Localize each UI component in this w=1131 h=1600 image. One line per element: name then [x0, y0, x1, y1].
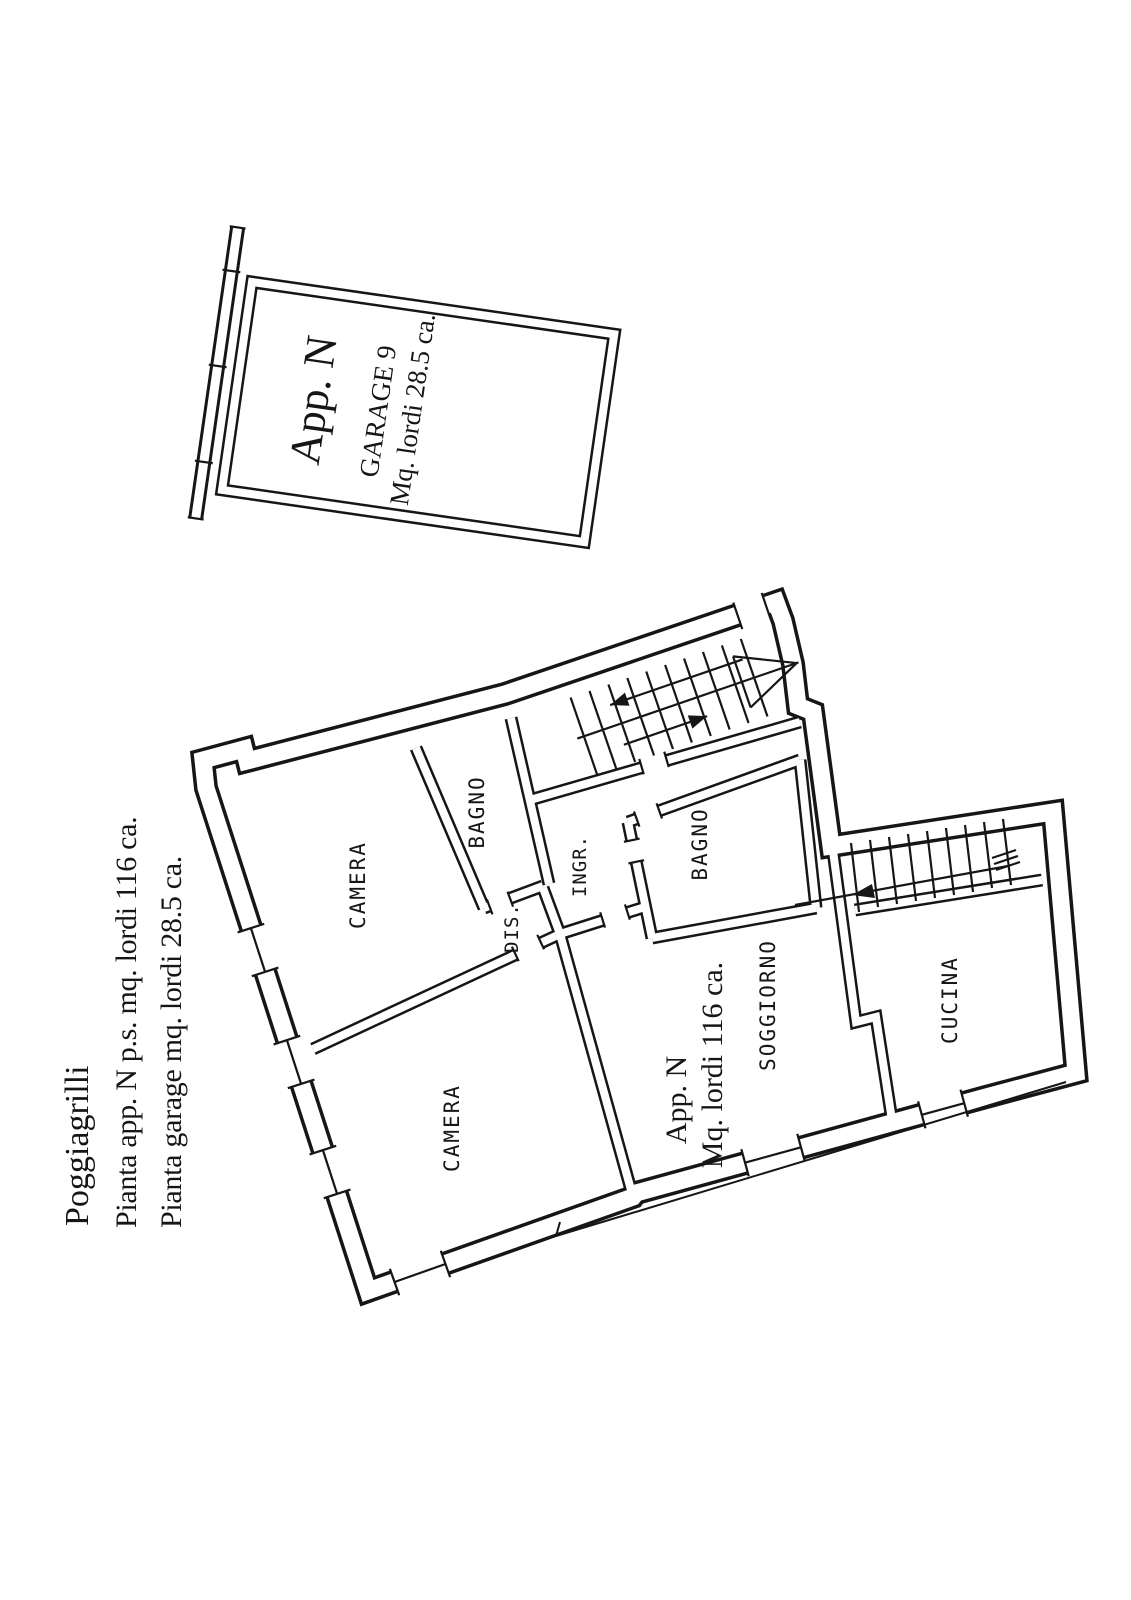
room-label-ingr: INGR.: [569, 835, 591, 897]
room-label-soggiorno: SOGGIORNO: [756, 939, 780, 1071]
room-label-camera-2: CAMERA: [440, 1084, 464, 1172]
garage-plan: App. N GARAGE 9 Mq. lordi 28.5 ca.: [187, 226, 622, 574]
room-label-camera-1: CAMERA: [346, 841, 370, 929]
room-label-dis: DIS.: [501, 903, 523, 953]
apartment-area-label: Mq. lordi 116 ca.: [696, 962, 729, 1168]
title-apartment-line: Pianta app. N p.s. mq. lordi 116 ca.: [110, 817, 143, 1228]
title-garage-line: Pianta garage mq. lordi 28.5 ca.: [155, 856, 188, 1228]
room-label-cucina: CUCINA: [938, 956, 962, 1044]
apartment-annotation: App. N Mq. lordi 116 ca.: [660, 962, 729, 1168]
room-label-bagno-1: BAGNO: [465, 775, 489, 848]
apartment-unit-label: App. N: [660, 1056, 693, 1144]
floor-plan-drawing: App. N GARAGE 9 Mq. lordi 28.5 ca.: [0, 0, 1131, 1600]
garage-unit-label: App. N: [280, 332, 347, 467]
title-block: Poggiagrilli Pianta app. N p.s. mq. lord…: [59, 817, 188, 1228]
room-label-bagno-2: BAGNO: [688, 807, 712, 880]
door-window-openings: [238, 593, 968, 1295]
title-project-name: Poggiagrilli: [59, 1065, 96, 1226]
scanned-floorplan-page: App. N GARAGE 9 Mq. lordi 28.5 ca.: [0, 0, 1131, 1600]
balcony-line: [556, 1082, 1066, 1236]
